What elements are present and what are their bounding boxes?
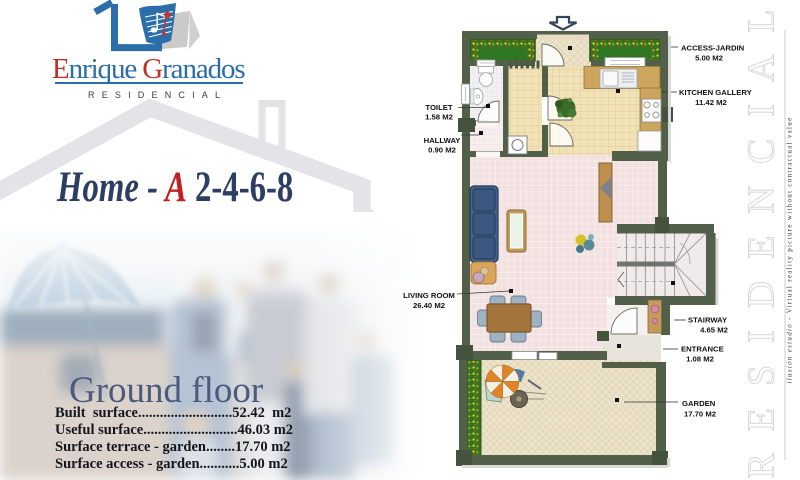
svg-text:1.08 M2: 1.08 M2	[686, 355, 714, 364]
svg-text:ilusión estudio - Virtual real: ilusión estudio - Virtual reality pictur…	[786, 117, 794, 384]
svg-text:4.65 M2: 4.65 M2	[700, 326, 728, 335]
svg-text:5.00 M2: 5.00 M2	[695, 54, 723, 63]
svg-text:0.90 M2: 0.90 M2	[428, 146, 456, 155]
svg-text:ACCESS-JARDIN: ACCESS-JARDIN	[681, 44, 745, 53]
svg-text:RESIDENCIAL: RESIDENCIAL	[741, 0, 783, 479]
svg-text:LIVING ROOM: LIVING ROOM	[403, 291, 455, 300]
svg-text:11.42 M2: 11.42 M2	[695, 98, 727, 107]
svg-text:STAIRWAY: STAIRWAY	[688, 316, 727, 325]
svg-text:GARDEN: GARDEN	[682, 399, 716, 408]
svg-text:ENTRANCE: ENTRANCE	[681, 345, 724, 354]
svg-text:TOILET: TOILET	[425, 103, 452, 112]
svg-text:HALLWAY: HALLWAY	[424, 136, 461, 145]
svg-text:1.58 M2: 1.58 M2	[425, 113, 453, 122]
svg-text:17.70 M2: 17.70 M2	[684, 410, 716, 419]
svg-text:26.40 M2: 26.40 M2	[413, 301, 445, 310]
